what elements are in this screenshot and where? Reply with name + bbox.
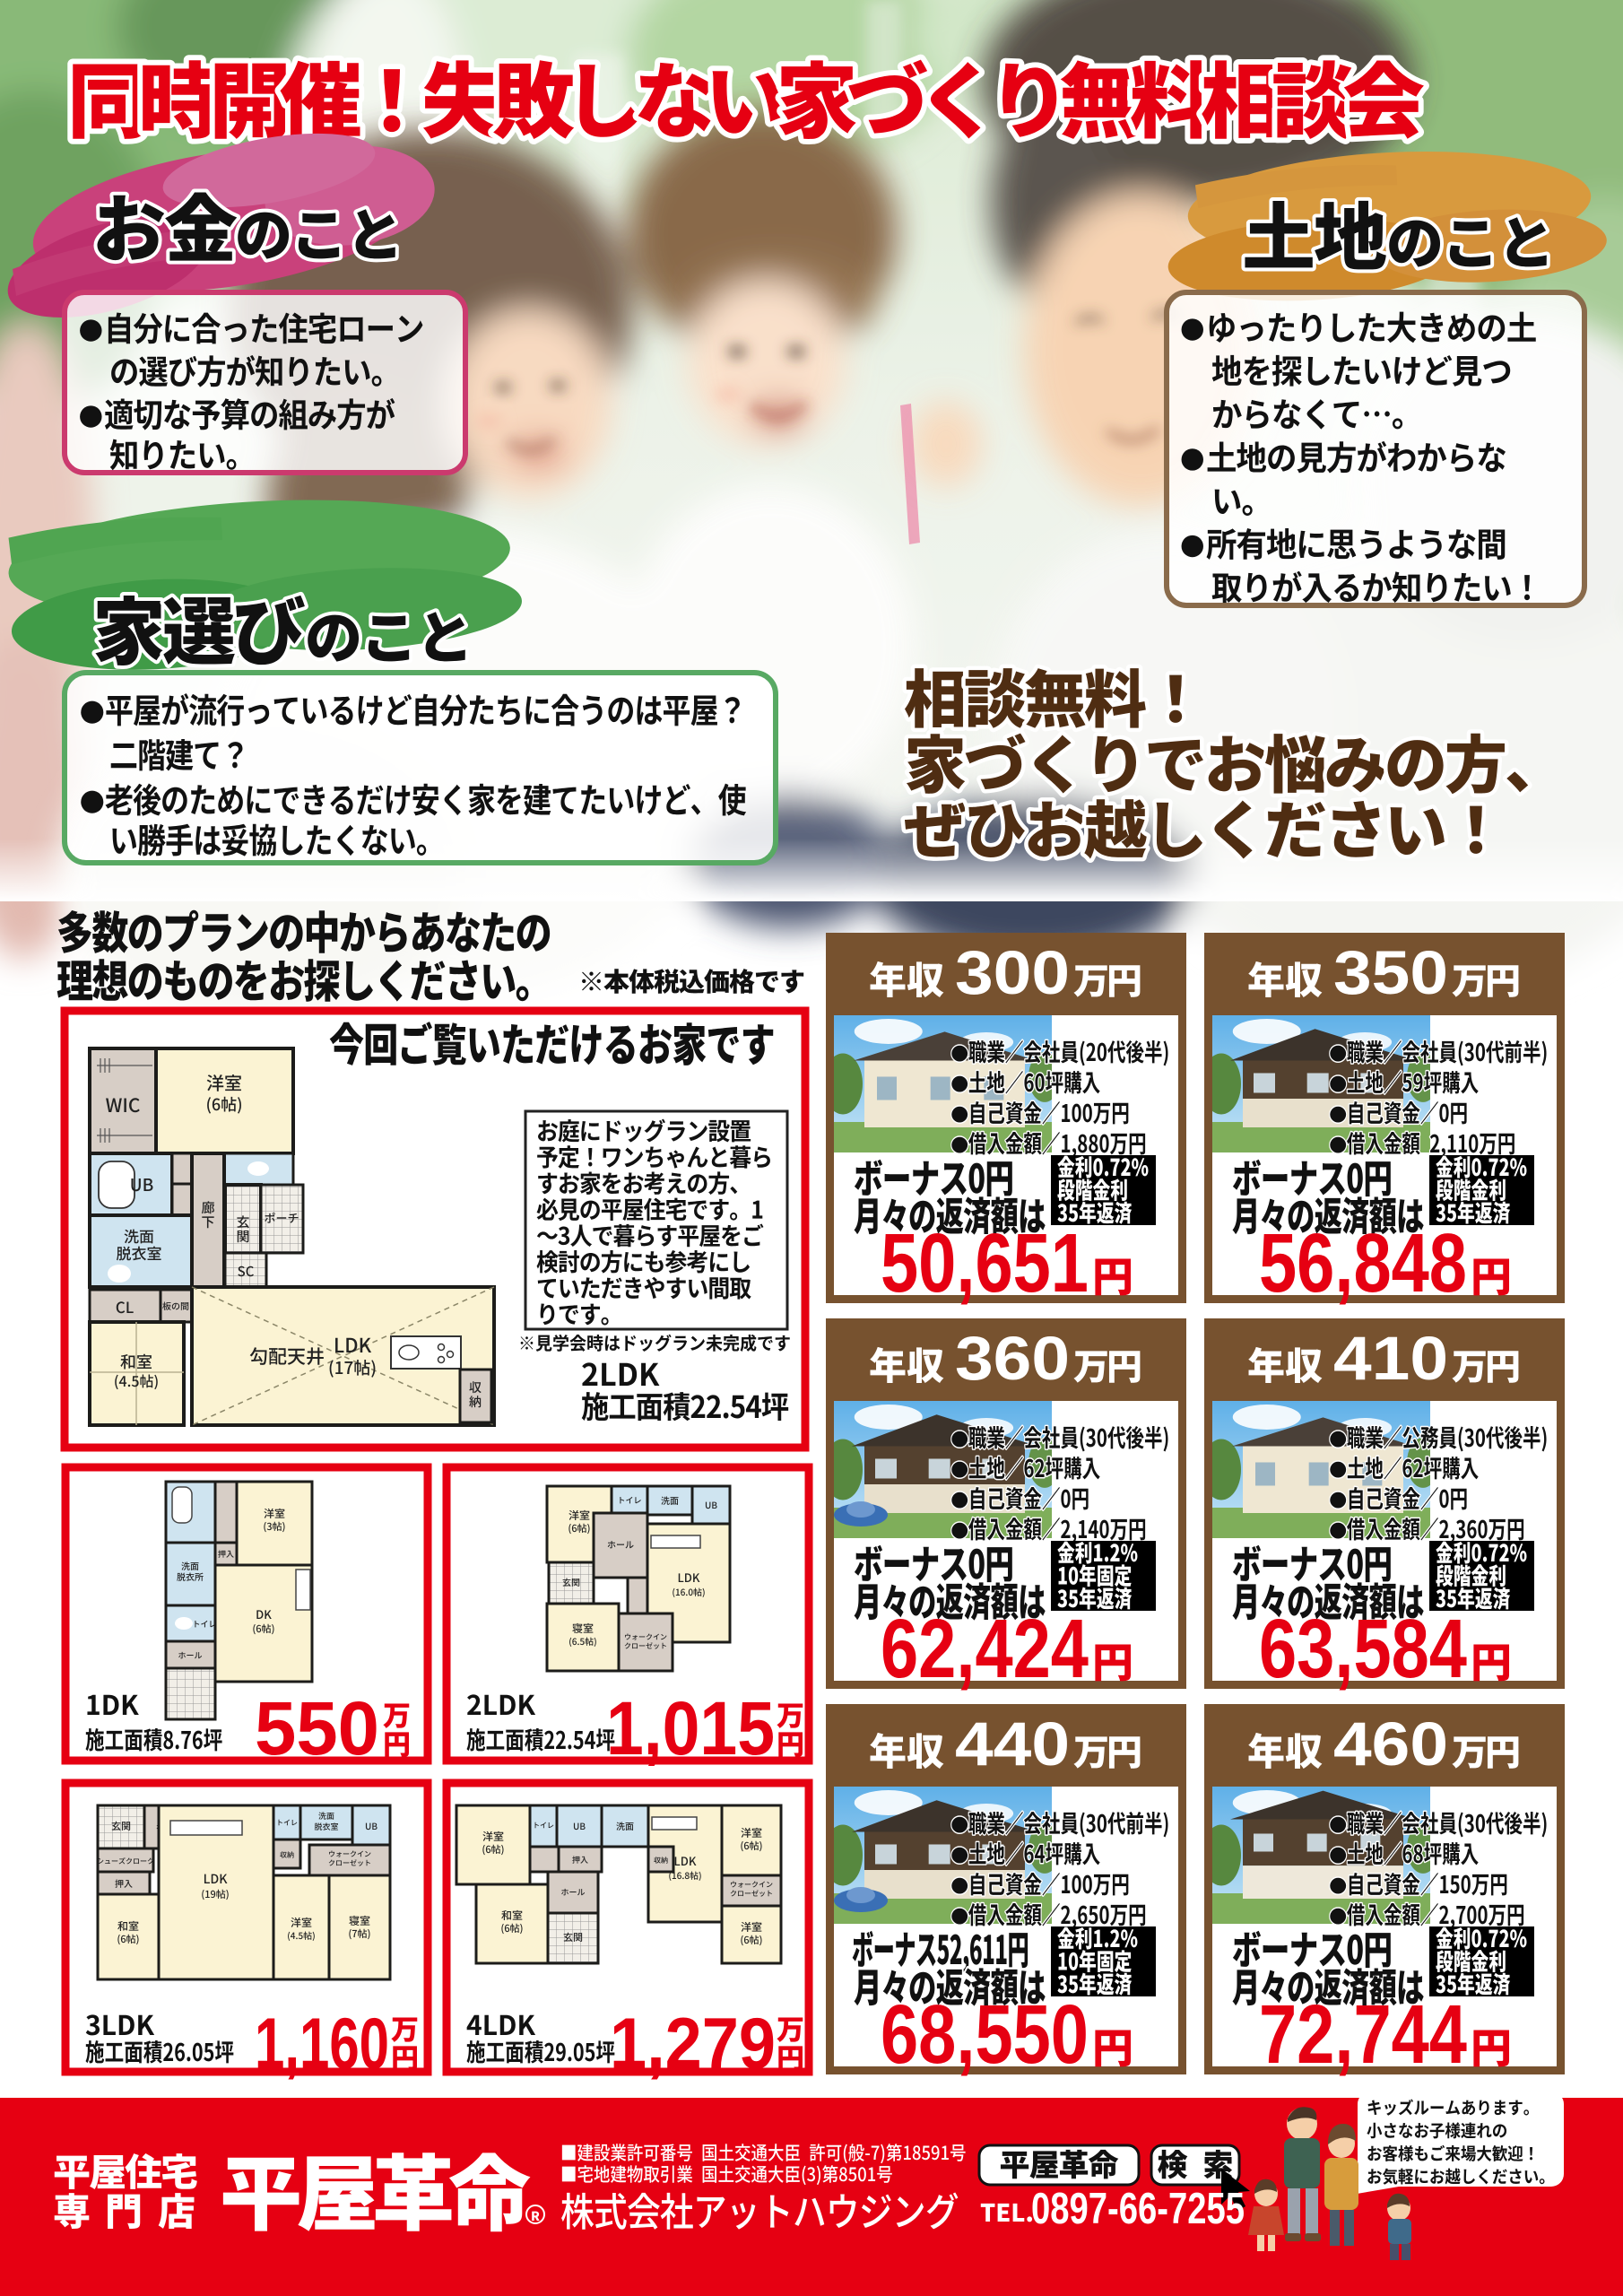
svg-text:350: 350 <box>1333 938 1448 1007</box>
svg-text:300: 300 <box>955 938 1070 1007</box>
svg-text:1,279: 1,279 <box>610 2004 776 2084</box>
svg-text:62,424: 62,424 <box>881 1602 1089 1695</box>
svg-text:1,160: 1,160 <box>255 2004 389 2084</box>
svg-text:550: 550 <box>255 1686 379 1770</box>
svg-text:1,015: 1,015 <box>606 1686 775 1770</box>
svg-text:410: 410 <box>1333 1324 1448 1393</box>
svg-text:50,651: 50,651 <box>881 1216 1089 1309</box>
svg-text:68,550: 68,550 <box>881 1987 1089 2081</box>
svg-text:72,744: 72,744 <box>1259 1987 1467 2081</box>
svg-text:63,584: 63,584 <box>1259 1602 1467 1695</box>
svg-text:360: 360 <box>955 1324 1070 1393</box>
svg-text:460: 460 <box>1333 1709 1448 1779</box>
svg-text:440: 440 <box>955 1709 1070 1779</box>
svg-text:56,848: 56,848 <box>1259 1216 1467 1309</box>
svg-text:0897-66-7255: 0897-66-7255 <box>1031 2185 1245 2233</box>
